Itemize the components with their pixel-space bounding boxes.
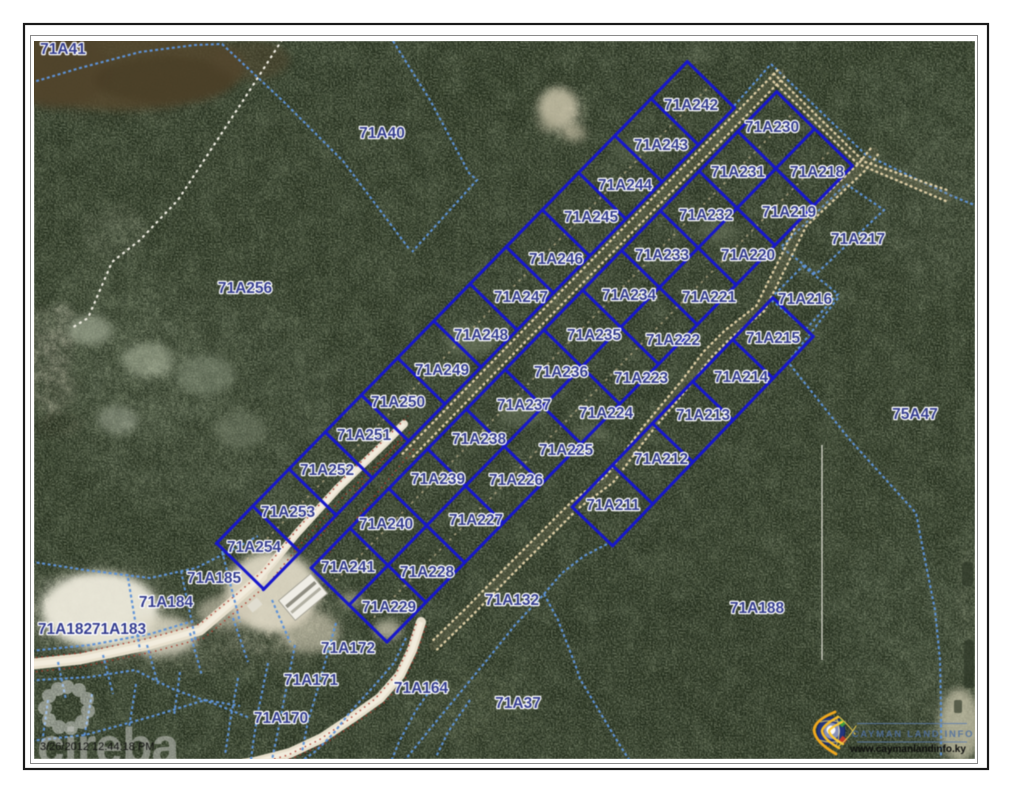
svg-text:71A236: 71A236 [534, 364, 589, 381]
svg-text:71A252: 71A252 [300, 462, 354, 479]
svg-text:71A218: 71A218 [790, 164, 845, 181]
svg-text:71A215: 71A215 [746, 330, 801, 347]
svg-text:71A40: 71A40 [359, 125, 405, 142]
svg-text:71A250: 71A250 [371, 394, 425, 411]
svg-text:71A164: 71A164 [394, 680, 449, 697]
svg-text:71A221: 71A221 [682, 289, 737, 306]
svg-text:71A244: 71A244 [598, 177, 653, 194]
svg-text:71A223: 71A223 [614, 370, 669, 387]
svg-text:71A219: 71A219 [762, 204, 817, 221]
svg-text:71A229: 71A229 [362, 599, 417, 616]
svg-text:71A253: 71A253 [261, 504, 316, 521]
svg-text:71A240: 71A240 [359, 516, 413, 533]
svg-text:71A231: 71A231 [711, 164, 766, 181]
svg-text:71A170: 71A170 [254, 710, 308, 727]
svg-text:71A171: 71A171 [284, 672, 339, 689]
svg-text:71A227: 71A227 [449, 512, 503, 529]
svg-text:71A224: 71A224 [579, 405, 634, 422]
svg-text:71A245: 71A245 [564, 209, 619, 226]
svg-text:71A185: 71A185 [187, 570, 242, 587]
svg-text:71A233: 71A233 [635, 247, 690, 264]
svg-text:71A216: 71A216 [778, 291, 833, 308]
svg-text:71A238: 71A238 [452, 431, 507, 448]
svg-text:71A232: 71A232 [679, 207, 733, 224]
svg-text:71A246: 71A246 [529, 251, 584, 268]
svg-text:71A183: 71A183 [92, 621, 147, 638]
svg-text:75A47: 75A47 [892, 406, 938, 423]
svg-text:71A254: 71A254 [227, 539, 282, 556]
svg-text:71A37: 71A37 [495, 695, 541, 712]
svg-text:71A41: 71A41 [40, 41, 86, 58]
svg-text:71A220: 71A220 [721, 247, 775, 264]
svg-text:71A213: 71A213 [676, 407, 731, 424]
svg-text:71A184: 71A184 [139, 594, 194, 611]
svg-text:71A241: 71A241 [321, 559, 376, 576]
svg-text:71A228: 71A228 [400, 564, 455, 581]
svg-text:71A235: 71A235 [567, 327, 622, 344]
svg-text:71A212: 71A212 [634, 451, 688, 468]
svg-text:71A234: 71A234 [602, 287, 657, 304]
svg-text:71A222: 71A222 [646, 332, 700, 349]
svg-text:71A239: 71A239 [411, 471, 466, 488]
svg-text:71A214: 71A214 [714, 369, 769, 386]
svg-text:CAYMAN LAND INFO: CAYMAN LAND INFO [852, 729, 974, 740]
svg-text:71A251: 71A251 [337, 427, 392, 444]
svg-text:71A243: 71A243 [634, 137, 689, 154]
svg-text:71A217: 71A217 [831, 231, 885, 248]
svg-text:71A182: 71A182 [38, 621, 92, 638]
svg-text:71A211: 71A211 [586, 497, 640, 514]
svg-text:71A225: 71A225 [539, 442, 594, 459]
svg-text:71A247: 71A247 [494, 289, 548, 306]
svg-text:www.caymanlandinfo.ky: www.caymanlandinfo.ky [849, 744, 966, 755]
svg-text:71A248: 71A248 [454, 327, 509, 344]
svg-text:71A172: 71A172 [321, 640, 375, 657]
svg-text:71A188: 71A188 [730, 600, 785, 617]
svg-text:71A256: 71A256 [218, 280, 273, 297]
svg-text:71A226: 71A226 [489, 472, 544, 489]
svg-text:71A132: 71A132 [485, 592, 539, 609]
svg-text:71A237: 71A237 [497, 397, 551, 414]
svg-text:71A242: 71A242 [664, 97, 718, 114]
svg-text:71A230: 71A230 [745, 119, 799, 136]
svg-text:71A249: 71A249 [415, 362, 470, 379]
svg-text:3/26/2012 12:44:18 PM: 3/26/2012 12:44:18 PM [40, 741, 154, 753]
